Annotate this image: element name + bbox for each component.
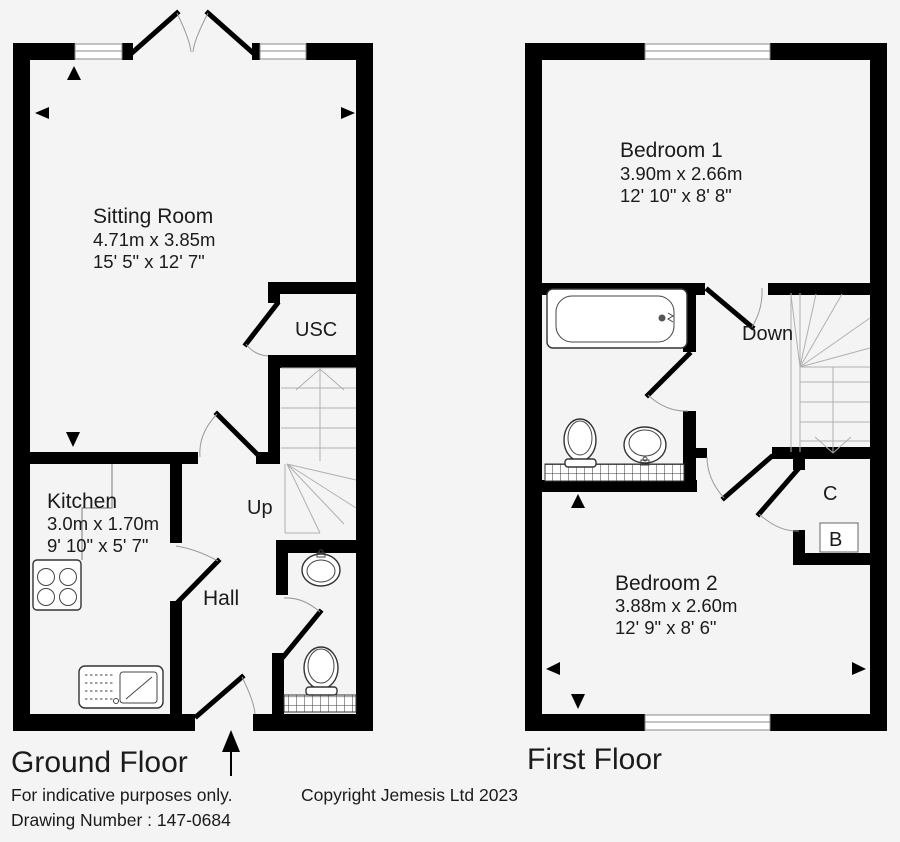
ground-floor-plan: Sitting Room 4.71m x 3.85m 15' 5" x 12' … [13, 13, 373, 776]
window-icon [75, 44, 122, 59]
door-icon [648, 354, 689, 411]
entrance-arrow-icon [222, 730, 240, 776]
bedroom1-dim-imperial: 12' 10" x 8' 8" [620, 185, 732, 206]
hob-icon [33, 560, 81, 610]
door-icon [200, 414, 261, 458]
sink-unit-icon [79, 666, 163, 708]
floorplan-canvas: Sitting Room 4.71m x 3.85m 15' 5" x 12' … [0, 0, 900, 842]
wc-tiled-floor [284, 695, 356, 712]
bathtub-icon [547, 289, 687, 348]
copyright-text: Copyright Jemesis Ltd 2023 [301, 785, 518, 805]
footer: Ground Floor First Floor For indicative … [11, 743, 662, 830]
window-icon [645, 44, 770, 59]
sitting-room-dim-imperial: 15' 5" x 12' 7" [93, 251, 205, 272]
door-icon [246, 304, 277, 356]
kitchen-label: Kitchen [47, 490, 117, 513]
kitchen-dim-imperial: 9' 10" x 5' 7" [47, 535, 148, 556]
disclaimer-text: For indicative purposes only. [11, 785, 232, 805]
basin-icon [302, 550, 340, 586]
ground-floor-title: Ground Floor [11, 746, 188, 779]
window-icon [645, 715, 770, 730]
toilet-icon [304, 647, 338, 695]
french-doors-icon [133, 13, 252, 59]
toilet-icon [564, 419, 596, 467]
bedroom2-dim-metric: 3.88m x 2.60m [615, 595, 737, 616]
door-icon [707, 457, 771, 498]
ground-floor-walls [13, 43, 373, 731]
bedroom1-dim-metric: 3.90m x 2.66m [620, 163, 742, 184]
stairs-down-label: Down [742, 323, 793, 345]
hall-label: Hall [203, 587, 239, 610]
door-icon [284, 598, 320, 656]
stairs-up-label: Up [247, 497, 273, 519]
bedroom2-label: Bedroom 2 [615, 572, 718, 595]
stairs-up [281, 368, 356, 533]
sitting-room-dim-metric: 4.71m x 3.85m [93, 229, 215, 250]
basin-icon [624, 427, 666, 465]
door-icon [708, 288, 762, 327]
bedroom1-label: Bedroom 1 [620, 139, 723, 162]
boiler-label: B [829, 529, 842, 551]
sitting-room-label: Sitting Room [93, 205, 213, 228]
stairs-down [791, 293, 870, 453]
window-icon [260, 44, 306, 59]
front-door-icon [195, 677, 255, 730]
first-floor-plan: Bedroom 1 3.90m x 2.66m 12' 10" x 8' 8" … [525, 43, 887, 731]
kitchen-dim-metric: 3.0m x 1.70m [47, 513, 159, 534]
drawing-number-text: Drawing Number : 147-0684 [11, 810, 231, 830]
door-icon [759, 468, 799, 531]
bedroom2-dim-imperial: 12' 9" x 8' 6" [615, 617, 716, 638]
cupboard-label: C [823, 483, 837, 505]
first-floor-title: First Floor [527, 743, 662, 776]
usc-label: USC [295, 319, 337, 341]
